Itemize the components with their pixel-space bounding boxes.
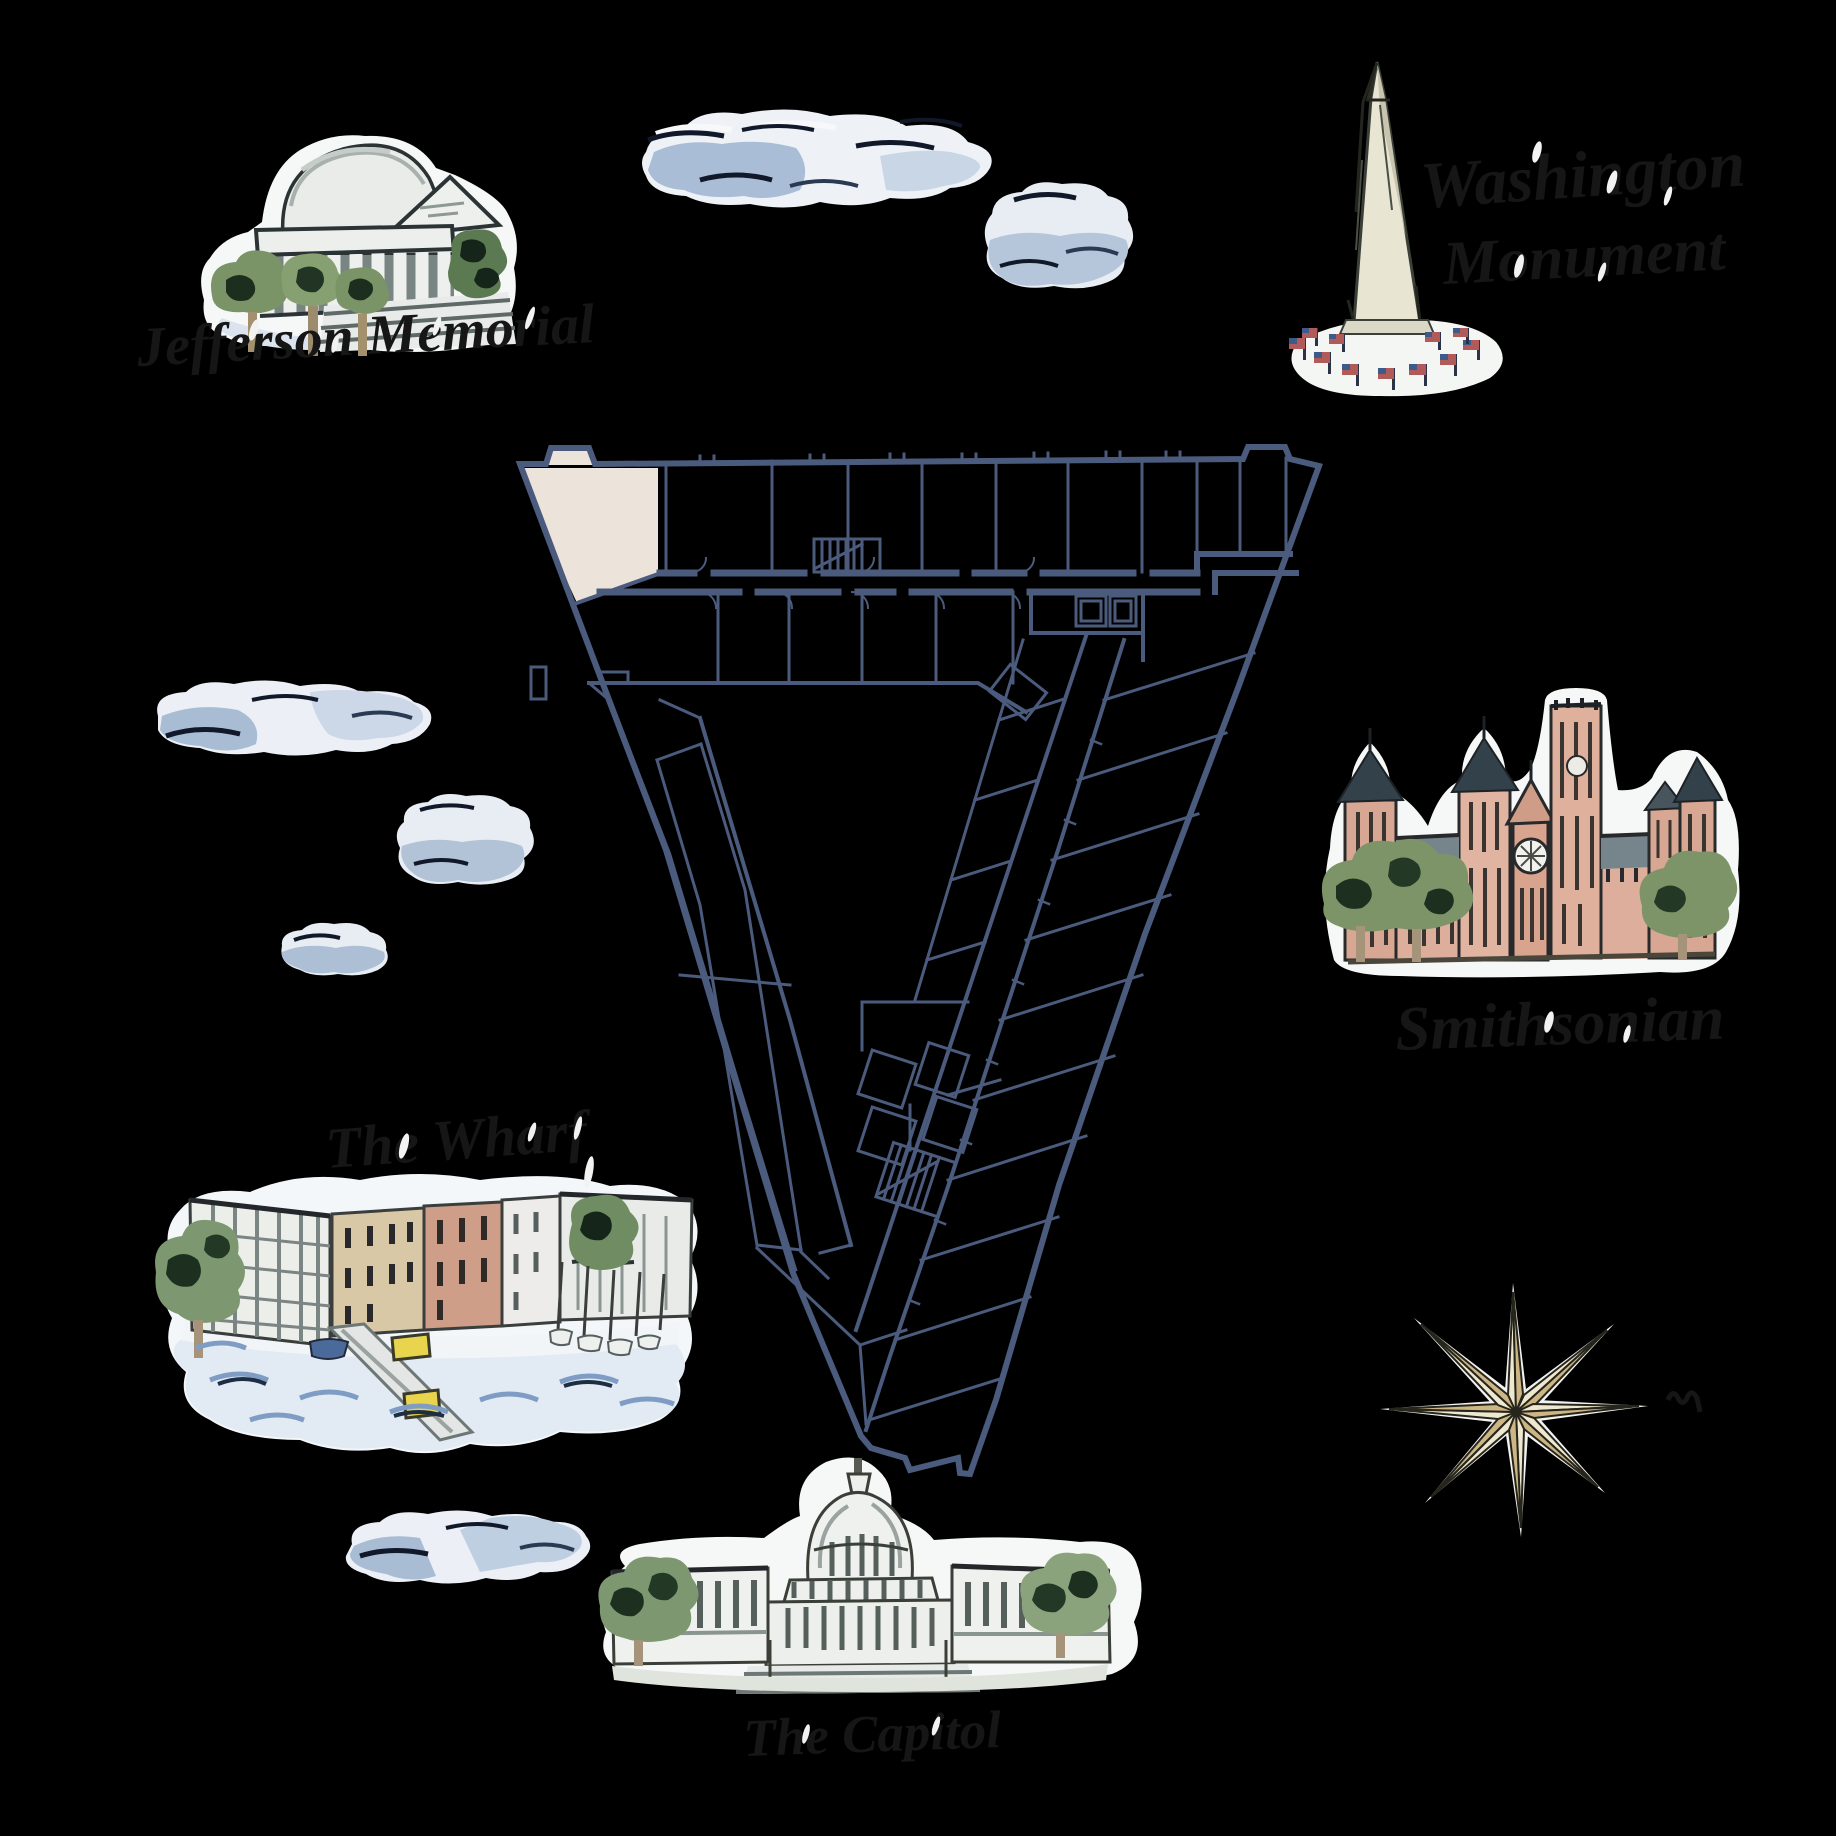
svg-text:The Capitol: The Capitol: [742, 1701, 1002, 1768]
svg-text:Smithsonian: Smithsonian: [1394, 983, 1725, 1064]
